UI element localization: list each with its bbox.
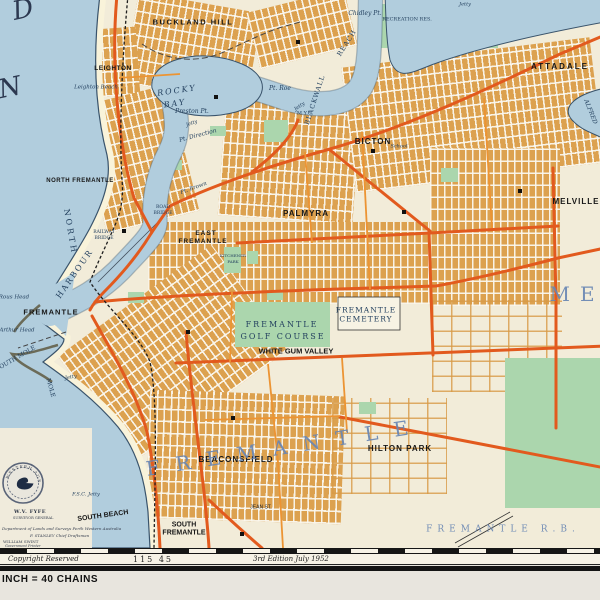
map-label-hilton-park: HILTON PARK [368,445,432,453]
map-label-fremantle: FREMANTLE [178,239,227,246]
map-label-east: EAST [195,231,216,238]
map-label-road: ROAD [156,206,170,211]
map-label-arthur-head: Arthur Head [0,328,35,334]
map-label-melville: MELVILLE [553,198,600,206]
map-label-rous-head: Rous Head [0,295,29,301]
map-label-fremantle: FREMANTLE [162,530,205,537]
map-label-alfred: ALFRED [582,99,597,126]
credit-surveyor: W.V. FYFE [14,509,46,515]
map-label-white-gum-valley: WHITE GUM VALLEY [259,347,334,355]
map-label-preston-pt: Preston Pt. [175,109,209,115]
map-label-park: PARK [227,260,238,264]
edition-note: 3rd Edition July 1952 [253,555,329,563]
map-label-bridge: BRIDGE [154,212,173,217]
map-label-pt-direction: Pt. Direction [179,128,218,144]
map-label-bridge: BRIDGE [95,237,114,242]
map-label-south-mole: SOUTH MOLE [0,345,37,373]
map-label-harbour: HARBOUR [55,248,95,300]
map-label-fremantle: FREMANTLE [336,306,396,314]
map-label-golf-course: GOLF COURSE [240,333,325,341]
map-label-d: D [10,0,36,25]
map-label-kitchener: KITCHENER [220,254,246,258]
map-label-jetty: Jetty [459,3,471,8]
surveyor-general-seal: WESTERN AUSTRALIA [0,460,46,506]
map-label-n: N [0,73,24,103]
map-label-fremantle-r-b: FREMANTLE R.B. [426,526,580,535]
credit-surveyor-title: SURVEYOR GENERAL [13,516,53,520]
map-sheet-fremantle: { "map": { "labels": [ {"t":"D","cls":"l… [0,0,600,600]
map-label-pt-brown: Pt. Brown [180,182,208,197]
copyright-note: Copyright Reserved [8,555,79,563]
map-label-cemetery: CEMETERY [339,315,392,323]
neatline-thin [0,564,600,565]
scale-note: INCH = 40 CHAINS [2,574,98,585]
map-label-reach: REACH [336,29,357,58]
map-label-south: SOUTH [172,522,197,529]
map-label-blackwall: BLACKWALL [304,74,326,126]
credit-dept: Department of Lands and Surveys Perth We… [2,526,121,531]
map-label-me: ME [549,284,600,304]
map-label-buckland-hill: BUCKLAND HILL [153,18,234,26]
map-label-fremantle: FREMANTLE [246,321,319,329]
map-label-north: NORTH [62,208,78,255]
margin-text-strip: Copyright Reserved 115 45 3rd Edition Ju… [0,554,600,564]
map-label-railway: RAILWAY [93,231,114,236]
map-label-bicton: BICTON [355,138,392,146]
map-label-chidley-pt: Chidley Pt. [348,11,381,17]
map-label-palmyra: PALMYRA [283,210,329,218]
map-label-pt-roe: Pt. Roe [269,86,291,92]
map-label-school: School [390,145,407,150]
sheet-number: 115 45 [133,555,173,564]
credit-draftsman: F. STANLEY Chief Draftsman [30,533,89,538]
map-label-jean-st: JEAN ST. [250,506,271,511]
map-label-mole: MOLE [45,378,56,398]
map-label-fremantle: FREMANTLE [23,308,78,316]
map-label-north-fremantle: NORTH FREMANTLE [46,178,114,184]
map-label-recreation-res: RECREATION RES. [382,18,432,23]
map-canvas: DNBUCKLAND HILLLEIGHTONLeighton BeachROC… [0,0,600,548]
map-label-jetty: Jetty [65,375,78,382]
map-label-leighton-beach: Leighton Beach [74,85,118,91]
credits-block: WESTERN AUSTRALIA W.V. FYFE SURVEYOR GEN… [0,460,160,548]
map-label-rocky: ROCKY [157,84,197,97]
map-label-m-y-c: M.Y.C. [297,112,313,117]
map-label-leighton: LEIGHTON [94,66,131,73]
map-label-attadale: ATTADALE [531,63,589,71]
map-label-jetty: Jetty [186,120,199,129]
